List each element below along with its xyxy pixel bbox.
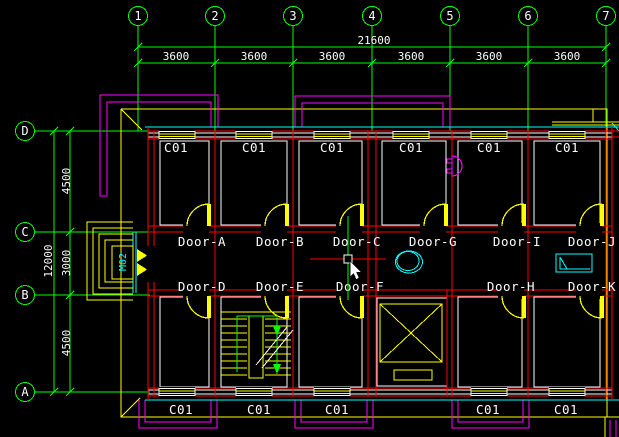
mouse-arrow-icon [350,261,362,280]
round-fixture-inner[interactable] [397,252,419,271]
room-label[interactable]: C01 [476,402,500,417]
stair-arrow-1[interactable] [273,326,281,336]
row-grid-bubbles[interactable] [16,122,35,402]
door-label[interactable]: Door-B [256,234,304,249]
grid-bubble-6[interactable]: 6 [524,9,531,23]
room-label[interactable]: C01 [555,140,579,155]
room-label[interactable]: C01 [242,140,266,155]
door-label[interactable]: Door-A [178,234,226,249]
dimension-row-1[interactable]: 4500 [60,168,73,195]
door-label[interactable]: Door-E [256,279,304,294]
room-label[interactable]: C01 [399,140,423,155]
window-glazing[interactable] [159,134,585,394]
grid-bubble-5[interactable]: 5 [446,9,453,23]
grid-bubble-1[interactable]: 1 [134,9,141,23]
door-label[interactable]: Door-F [336,279,384,294]
dimension-bay-4[interactable]: 3600 [398,50,425,63]
entrance-door-swing-2[interactable] [137,263,147,276]
floor-plan-canvas[interactable]: 1 2 3 4 5 6 7 D C B A 21600 3600 3600 36… [0,0,619,437]
dimension-total-width[interactable]: 21600 [357,34,390,47]
dimension-bay-5[interactable]: 3600 [476,50,503,63]
dimension-bay-3[interactable]: 3600 [319,50,346,63]
room-label[interactable]: C01 [325,402,349,417]
grid-bubble-4[interactable]: 4 [368,9,375,23]
door-swing-arcs[interactable] [187,204,602,318]
room-label[interactable]: C01 [169,402,193,417]
door-label[interactable]: Door-J [568,234,616,249]
dimension-bay-2[interactable]: 3600 [241,50,268,63]
door-label[interactable]: Door-I [493,234,541,249]
door-label[interactable]: Door-C [333,234,381,249]
dimension-row-3[interactable]: 4500 [60,330,73,357]
door-leaves[interactable] [207,204,604,318]
dimension-bay-1[interactable]: 3600 [163,50,190,63]
entrance-label[interactable]: M02 [118,253,129,271]
grid-bubble-7[interactable]: 7 [602,9,609,23]
elevator-shaft[interactable] [380,304,442,380]
room-label[interactable]: C01 [554,402,578,417]
dimension-bay-6[interactable]: 3600 [554,50,581,63]
grid-bubble-D[interactable]: D [21,124,28,138]
windows[interactable] [159,130,585,397]
door-label[interactable]: Door-H [487,279,535,294]
corridor-fixtures[interactable] [396,251,593,273]
door-label[interactable]: Door-D [178,279,226,294]
room-label[interactable]: C01 [320,140,344,155]
staircase[interactable] [221,312,293,380]
door-label[interactable]: Door-K [568,279,616,294]
balcony-bottom-right-stub[interactable] [610,420,616,437]
entrance-door-swing-1[interactable] [137,249,147,262]
dimension-total-height[interactable]: 12000 [42,244,55,277]
doors[interactable] [183,204,604,318]
window-frames[interactable] [159,131,585,396]
grid-bubble-C[interactable]: C [21,225,28,239]
room-label[interactable]: C01 [477,140,501,155]
room-label[interactable]: C01 [247,402,271,417]
grid-bubble-B[interactable]: B [21,288,28,302]
grid-bubble-3[interactable]: 3 [289,9,296,23]
entrance[interactable] [87,222,147,300]
room-label[interactable]: C01 [164,140,188,155]
door-label[interactable]: Door-G [409,234,457,249]
grid-bubble-2[interactable]: 2 [211,9,218,23]
grid-bubble-A[interactable]: A [21,385,29,399]
balcony-top-left[interactable] [100,95,218,196]
labels[interactable]: 1 2 3 4 5 6 7 D C B A 21600 3600 3600 36… [21,9,616,417]
socket-symbol[interactable] [447,156,462,176]
cad-viewport[interactable]: 1 2 3 4 5 6 7 D C B A 21600 3600 3600 36… [0,0,619,437]
stair-arrow-2[interactable] [273,364,281,374]
dimension-row-2[interactable]: 3000 [60,250,73,277]
